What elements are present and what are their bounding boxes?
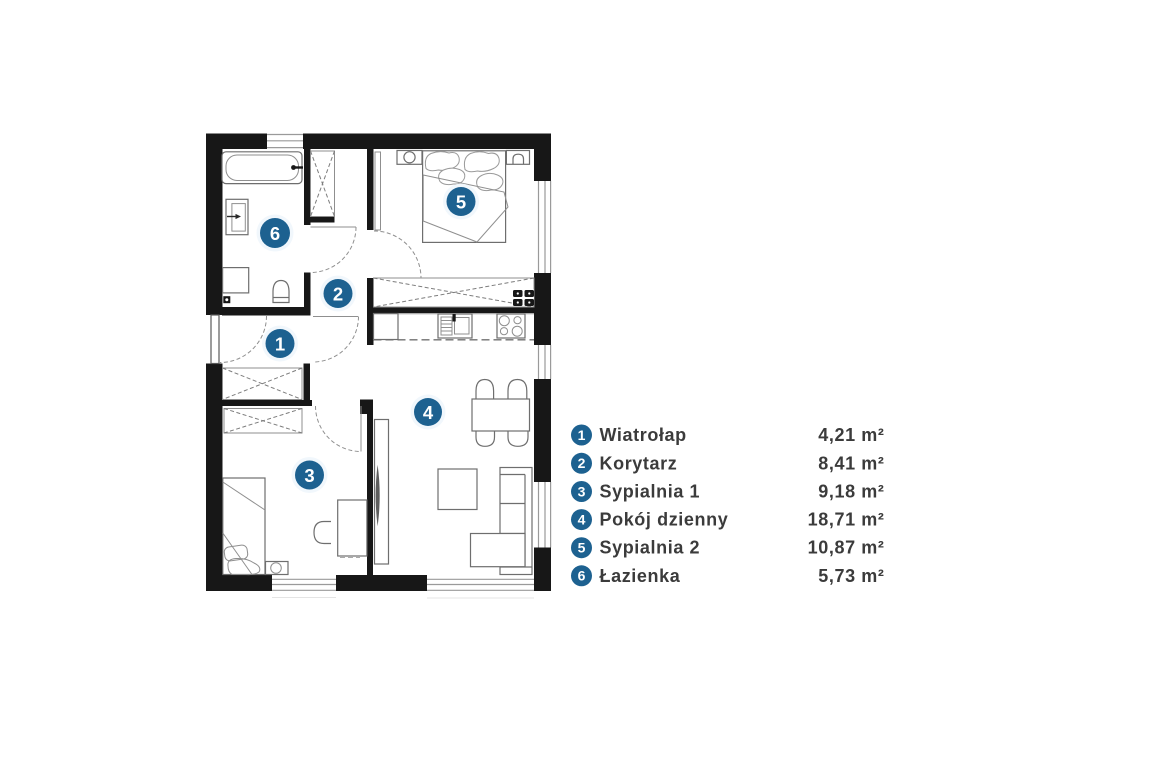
svg-text:18,71 m²: 18,71 m²: [808, 510, 885, 530]
svg-text:Korytarz: Korytarz: [600, 453, 678, 473]
svg-text:6: 6: [578, 568, 586, 584]
svg-text:5,73 m²: 5,73 m²: [818, 566, 884, 586]
svg-text:3: 3: [578, 483, 586, 499]
svg-text:4: 4: [423, 402, 434, 423]
svg-text:2: 2: [578, 455, 586, 471]
svg-text:9,18 m²: 9,18 m²: [818, 482, 884, 502]
svg-text:Łazienka: Łazienka: [600, 566, 681, 586]
svg-text:Pokój dzienny: Pokój dzienny: [600, 510, 729, 530]
svg-text:6: 6: [270, 223, 280, 244]
svg-text:5: 5: [456, 191, 466, 212]
svg-text:3: 3: [304, 465, 314, 486]
svg-text:10,87 m²: 10,87 m²: [808, 538, 885, 558]
svg-text:Sypialnia 2: Sypialnia 2: [600, 538, 701, 558]
svg-text:2: 2: [333, 283, 343, 304]
svg-text:1: 1: [578, 427, 586, 443]
svg-text:1: 1: [275, 333, 285, 354]
svg-text:5: 5: [578, 540, 586, 556]
svg-text:Wiatrołap: Wiatrołap: [600, 425, 687, 445]
svg-text:Sypialnia 1: Sypialnia 1: [600, 482, 701, 502]
svg-text:4,21 m²: 4,21 m²: [818, 425, 884, 445]
svg-text:8,41 m²: 8,41 m²: [818, 453, 884, 473]
svg-text:4: 4: [578, 511, 586, 527]
